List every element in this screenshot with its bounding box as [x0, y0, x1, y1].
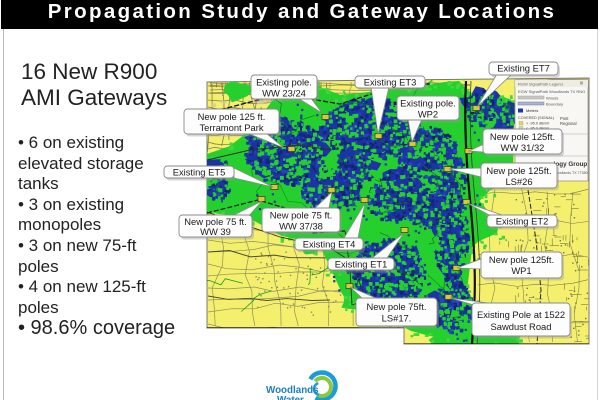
- svg-text:New pole 75ft.: New pole 75ft.: [367, 301, 427, 312]
- svg-text:COVERED (SIGNAL): COVERED (SIGNAL): [518, 116, 555, 120]
- svg-text:Existing Pole at 1522: Existing Pole at 1522: [477, 309, 565, 320]
- svg-text:New pole 125ft.: New pole 125ft.: [490, 131, 555, 142]
- svg-text:Existing ET2: Existing ET2: [496, 215, 549, 226]
- svg-text:Existing ET4: Existing ET4: [303, 238, 356, 249]
- svg-text:New pole 75 ft.: New pole 75 ft.: [270, 210, 333, 221]
- svg-text:LS#17.: LS#17.: [382, 313, 412, 324]
- svg-text:New pole 125ft.: New pole 125ft.: [489, 254, 554, 265]
- svg-text:EGW SignalPath Woodlands TX R: EGW SignalPath Woodlands TX RNG: [518, 89, 585, 94]
- svg-text:WW 37/38: WW 37/38: [279, 221, 323, 232]
- svg-text:Sawdust Road: Sawdust Road: [491, 321, 552, 332]
- svg-text:Woods: Woods: [546, 96, 558, 101]
- svg-text:WW 23/24: WW 23/24: [262, 88, 306, 99]
- svg-text:Existing ET3: Existing ET3: [364, 76, 417, 87]
- svg-text:Existing ET7: Existing ET7: [497, 63, 550, 74]
- svg-text:WW 31/32: WW 31/32: [501, 142, 545, 153]
- svg-text:> -95.0 dBmV: > -95.0 dBmV: [526, 122, 550, 126]
- svg-text:WW 39: WW 39: [200, 226, 231, 237]
- svg-text:Regional: Regional: [560, 121, 577, 126]
- svg-text:Existing ET5: Existing ET5: [173, 166, 226, 177]
- svg-text:RGW SignalPath Legend: RGW SignalPath Legend: [518, 82, 563, 87]
- svg-text:Terramont Park: Terramont Park: [199, 122, 263, 133]
- svg-text:Existing pole.: Existing pole.: [256, 77, 312, 88]
- svg-text:Existing pole.: Existing pole.: [400, 98, 456, 109]
- svg-text:WP1: WP1: [511, 265, 531, 276]
- svg-text:Existing ET1: Existing ET1: [335, 258, 388, 269]
- svg-text:LS#26: LS#26: [505, 176, 532, 187]
- svg-text:Boundary: Boundary: [546, 102, 563, 107]
- svg-text:Meters: Meters: [526, 108, 538, 113]
- svg-text:Water: Water: [277, 395, 304, 400]
- svg-text:New pole 125 ft.: New pole 125 ft.: [198, 111, 266, 122]
- svg-text:New pole 125ft.: New pole 125ft.: [486, 165, 551, 176]
- svg-text:WP2: WP2: [418, 109, 438, 120]
